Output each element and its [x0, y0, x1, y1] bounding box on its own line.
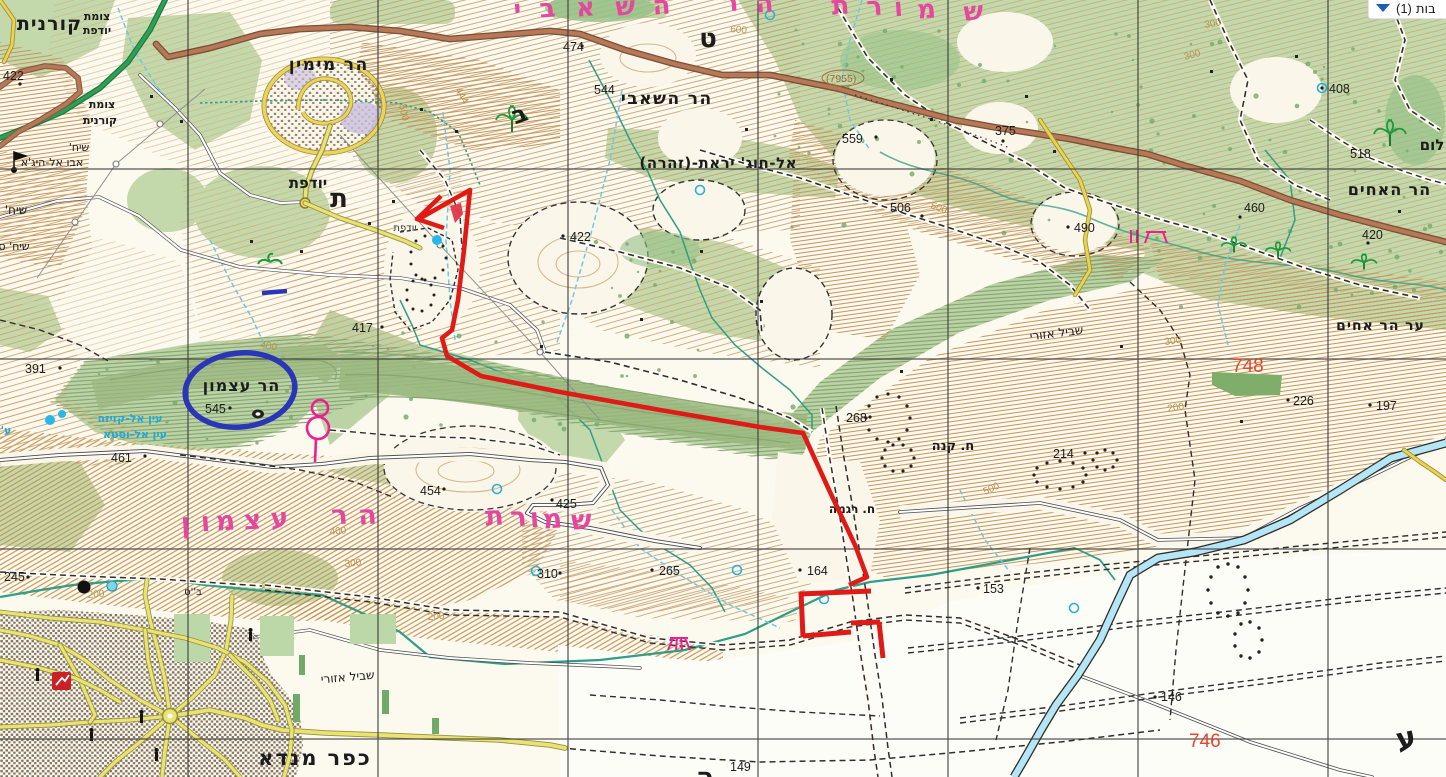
svg-text:454: 454 — [420, 484, 441, 498]
svg-text:200: 200 — [87, 589, 105, 601]
svg-text:422: 422 — [3, 69, 24, 83]
svg-text:490: 490 — [1074, 221, 1095, 235]
svg-text:(7955): (7955) — [826, 73, 856, 85]
svg-text:420: 420 — [1362, 228, 1383, 242]
svg-text:559: 559 — [842, 132, 863, 146]
svg-text:268: 268 — [846, 411, 867, 425]
svg-text:408: 408 — [1329, 82, 1350, 96]
svg-text:417: 417 — [352, 321, 373, 335]
svg-text:197: 197 — [1376, 399, 1397, 413]
svg-text:518: 518 — [1350, 147, 1371, 161]
svg-text:460: 460 — [1244, 201, 1265, 215]
svg-text:310: 310 — [537, 567, 558, 581]
svg-text:375: 375 — [995, 124, 1016, 138]
svg-text:200: 200 — [427, 611, 445, 623]
svg-text:461: 461 — [111, 451, 132, 465]
svg-text:391: 391 — [25, 362, 46, 376]
svg-text:226: 226 — [1293, 394, 1314, 408]
svg-text:600: 600 — [730, 24, 748, 36]
svg-text:422: 422 — [570, 230, 591, 244]
svg-text:746: 746 — [1189, 731, 1221, 752]
svg-text:545: 545 — [205, 402, 226, 416]
svg-text:(1): (1) — [1396, 1, 1412, 16]
svg-text:146: 146 — [1161, 690, 1182, 704]
svg-text:214: 214 — [1053, 447, 1074, 461]
svg-text:265: 265 — [659, 564, 680, 578]
svg-text:400: 400 — [329, 525, 347, 538]
svg-text:300: 300 — [344, 557, 362, 570]
svg-text:164: 164 — [807, 564, 828, 578]
svg-text:149: 149 — [730, 760, 751, 774]
svg-text:544: 544 — [594, 83, 615, 97]
svg-text:506: 506 — [890, 201, 911, 215]
svg-text:748: 748 — [1232, 356, 1264, 377]
svg-text:245: 245 — [4, 570, 25, 584]
svg-text:153: 153 — [983, 582, 1004, 596]
svg-text:425: 425 — [556, 497, 577, 511]
